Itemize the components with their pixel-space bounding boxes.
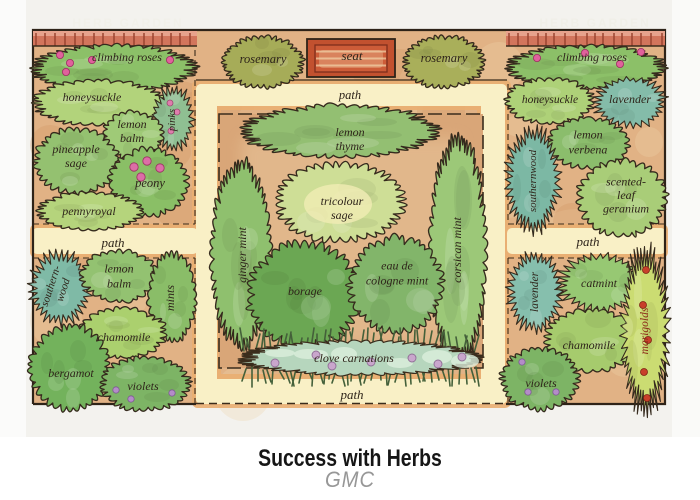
svg-text:honeysuckle: honeysuckle: [63, 90, 122, 104]
svg-text:HERB GARDEN: HERB GARDEN: [539, 16, 650, 30]
svg-text:path: path: [338, 88, 361, 102]
svg-text:violets: violets: [525, 376, 557, 390]
svg-text:marigolds: marigolds: [639, 307, 651, 354]
svg-text:path: path: [575, 234, 599, 249]
svg-text:path: path: [339, 387, 363, 402]
svg-text:path: path: [100, 235, 124, 250]
svg-text:corsican mint: corsican mint: [450, 217, 464, 283]
svg-text:peony: peony: [134, 176, 165, 190]
svg-text:mints: mints: [163, 285, 177, 311]
svg-text:lavender: lavender: [529, 271, 541, 312]
svg-text:chamomile: chamomile: [563, 338, 616, 352]
svg-text:catmint: catmint: [581, 276, 618, 290]
svg-text:pinks: pinks: [167, 109, 178, 132]
svg-text:lemonthyme: lemonthyme: [335, 125, 365, 153]
svg-text:climbing roses: climbing roses: [557, 50, 627, 64]
svg-text:chamomile: chamomile: [98, 330, 151, 344]
svg-text:lemonbalm: lemonbalm: [117, 117, 146, 145]
svg-text:clove carnations: clove carnations: [314, 351, 394, 365]
svg-text:rosemary: rosemary: [421, 51, 468, 65]
svg-text:seat: seat: [342, 48, 363, 63]
svg-text:climbing roses: climbing roses: [92, 50, 162, 64]
svg-text:lavender: lavender: [609, 92, 651, 106]
svg-text:pennyroyal: pennyroyal: [61, 204, 116, 218]
svg-text:HERB GARDEN: HERB GARDEN: [72, 16, 183, 30]
svg-text:honeysuckle: honeysuckle: [522, 94, 578, 106]
svg-text:southernwood: southernwood: [527, 149, 539, 212]
svg-text:lemonverbena: lemonverbena: [569, 128, 608, 157]
svg-text:rosemary: rosemary: [240, 52, 287, 66]
svg-text:ginger mint: ginger mint: [235, 227, 249, 283]
svg-text:borage: borage: [288, 284, 323, 298]
svg-text:violets: violets: [127, 379, 159, 393]
svg-text:bergamot: bergamot: [48, 366, 94, 380]
svg-text:lemonbalm: lemonbalm: [104, 262, 133, 291]
